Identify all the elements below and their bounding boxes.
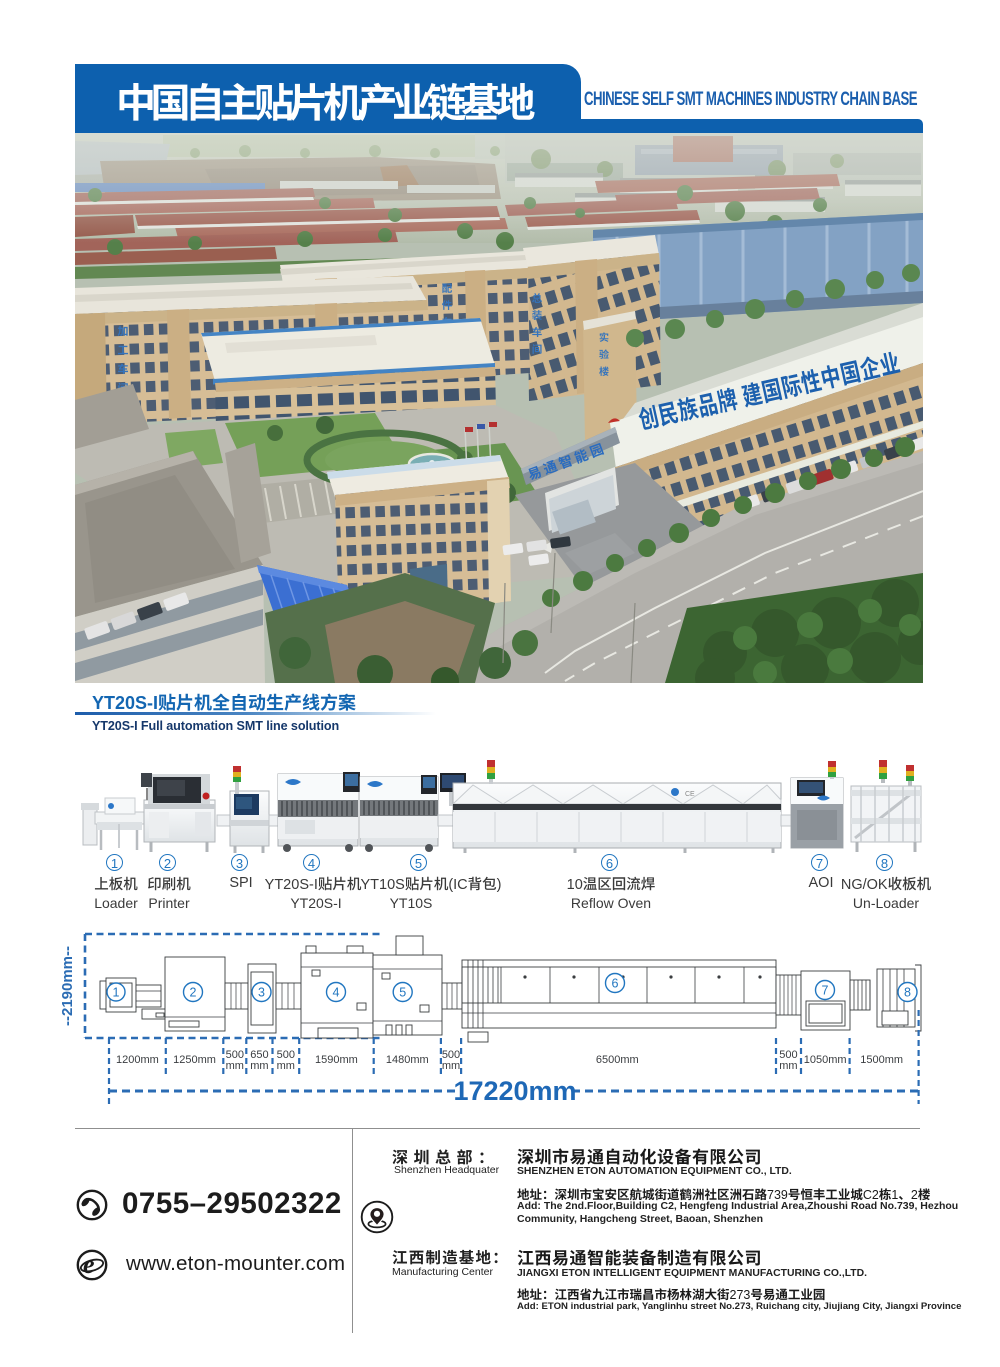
svg-text:1500mm: 1500mm [860, 1054, 903, 1066]
svg-text:5: 5 [399, 986, 406, 1000]
svg-text:6: 6 [612, 977, 619, 991]
svg-text:3: 3 [258, 986, 265, 1000]
svg-text:实验楼: 实验楼 [597, 329, 612, 380]
svg-text:mm: mm [779, 1060, 797, 1072]
svg-text:mm: mm [442, 1060, 460, 1072]
svg-text:1250mm: 1250mm [173, 1054, 216, 1066]
svg-text:e: e [83, 1250, 95, 1279]
svg-text:CE: CE [685, 791, 695, 798]
svg-text:1590mm: 1590mm [315, 1054, 358, 1066]
svg-text:1480mm: 1480mm [386, 1054, 429, 1066]
svg-text:1200mm: 1200mm [116, 1054, 159, 1066]
svg-text:mm: mm [277, 1060, 295, 1072]
svg-text:4: 4 [333, 986, 340, 1000]
svg-text:6500mm: 6500mm [596, 1054, 639, 1066]
svg-text:1050mm: 1050mm [804, 1054, 847, 1066]
svg-text:mm: mm [226, 1060, 244, 1072]
svg-text:--2190mm--: --2190mm-- [60, 946, 76, 1026]
svg-text:17220mm: 17220mm [453, 1076, 576, 1106]
svg-text:总装车间: 总装车间 [530, 291, 545, 359]
svg-text:8: 8 [904, 986, 911, 1000]
svg-text:1: 1 [113, 986, 120, 1000]
svg-text:7: 7 [822, 984, 829, 998]
svg-text:mm: mm [250, 1060, 268, 1072]
svg-text:2: 2 [190, 986, 197, 1000]
